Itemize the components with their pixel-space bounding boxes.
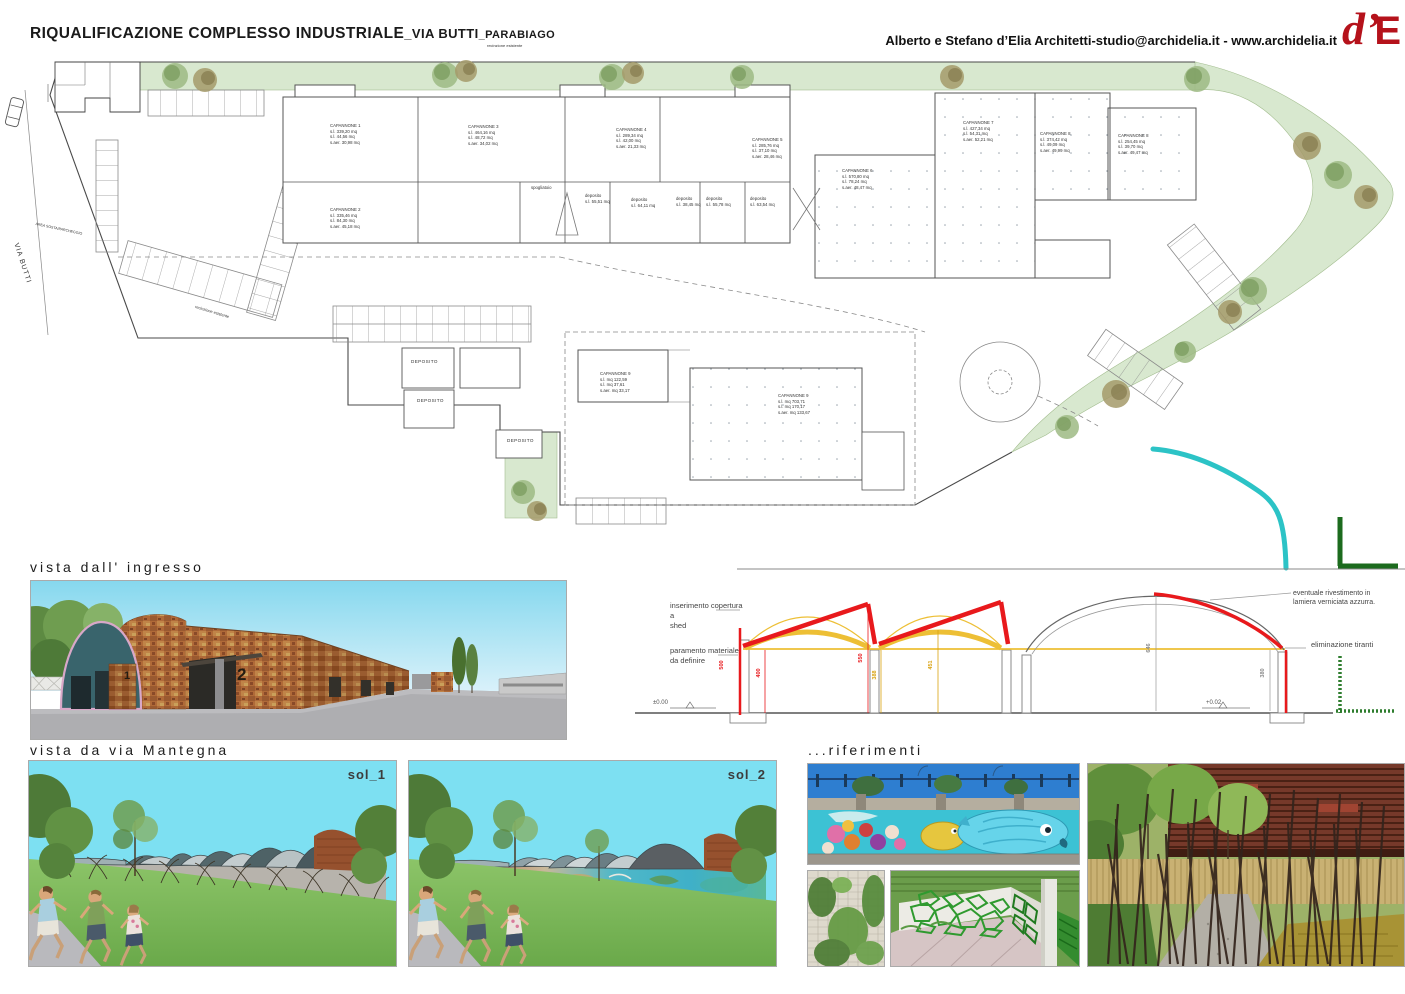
- heading-riferimenti: ...riferimenti: [808, 742, 923, 758]
- sol2-label: sol_2: [728, 767, 766, 782]
- section-yellow-arcs: [743, 616, 1285, 713]
- section-dim-label: 388: [872, 663, 878, 687]
- label-paramento: paramento materiale da definire: [670, 646, 754, 666]
- deposito-boxes: [402, 348, 542, 458]
- reference-mural-image: [807, 763, 1080, 865]
- sol1-label: sol_1: [348, 767, 386, 782]
- heading-vista-ingresso: vista dall' ingresso: [30, 559, 204, 575]
- capannone9-building: [565, 332, 915, 505]
- existing-building: [55, 62, 140, 112]
- building-number-1: 1: [124, 670, 130, 682]
- render-ingresso-image: 1 2: [30, 580, 567, 740]
- label-rivestimento: eventuale rivestimento in lamiera vernic…: [1293, 589, 1393, 608]
- road-edge: [25, 90, 48, 335]
- level-plus002: +0.02: [1206, 700, 1221, 706]
- building-number-2: 2: [237, 665, 246, 684]
- teal-sketch-line: [1153, 449, 1286, 568]
- capannoni-buildings: [283, 85, 1196, 278]
- green-wall-symbol: [1336, 656, 1395, 713]
- section-dim-label: 400: [756, 661, 762, 685]
- render-sol2-image: sol_2: [408, 760, 777, 967]
- car-icon: [5, 97, 24, 127]
- section-vault: [1026, 596, 1284, 711]
- section-dim-label: 380: [1260, 661, 1266, 685]
- site-plan-drawing: [0, 0, 1405, 575]
- heading-vista-mantegna: vista da via Mantegna: [30, 742, 229, 758]
- section-red-sheds: [740, 594, 1286, 715]
- label-tiranti: eliminazione tiranti: [1311, 640, 1373, 650]
- reference-lattice-image: [890, 870, 1080, 967]
- render-sol1-image: sol_1: [28, 760, 397, 967]
- section-walls: [740, 640, 1287, 713]
- entrance-pier: [109, 664, 136, 709]
- section-dim-label: 451: [928, 653, 934, 677]
- label-copertura-shed: inserimento copertura a shed: [670, 601, 748, 631]
- reference-greenwall-image: [807, 870, 885, 967]
- level-zero: ±0.00: [653, 700, 668, 706]
- section-dim-label: 550: [858, 646, 864, 670]
- section-dim-label: 500: [719, 653, 725, 677]
- reference-rods-image: [1087, 763, 1405, 967]
- presentation-board: RIQUALIFICAZIONE COMPLESSO INDUSTRIALE_V…: [0, 0, 1405, 994]
- section-dim-label: 646: [1146, 636, 1152, 660]
